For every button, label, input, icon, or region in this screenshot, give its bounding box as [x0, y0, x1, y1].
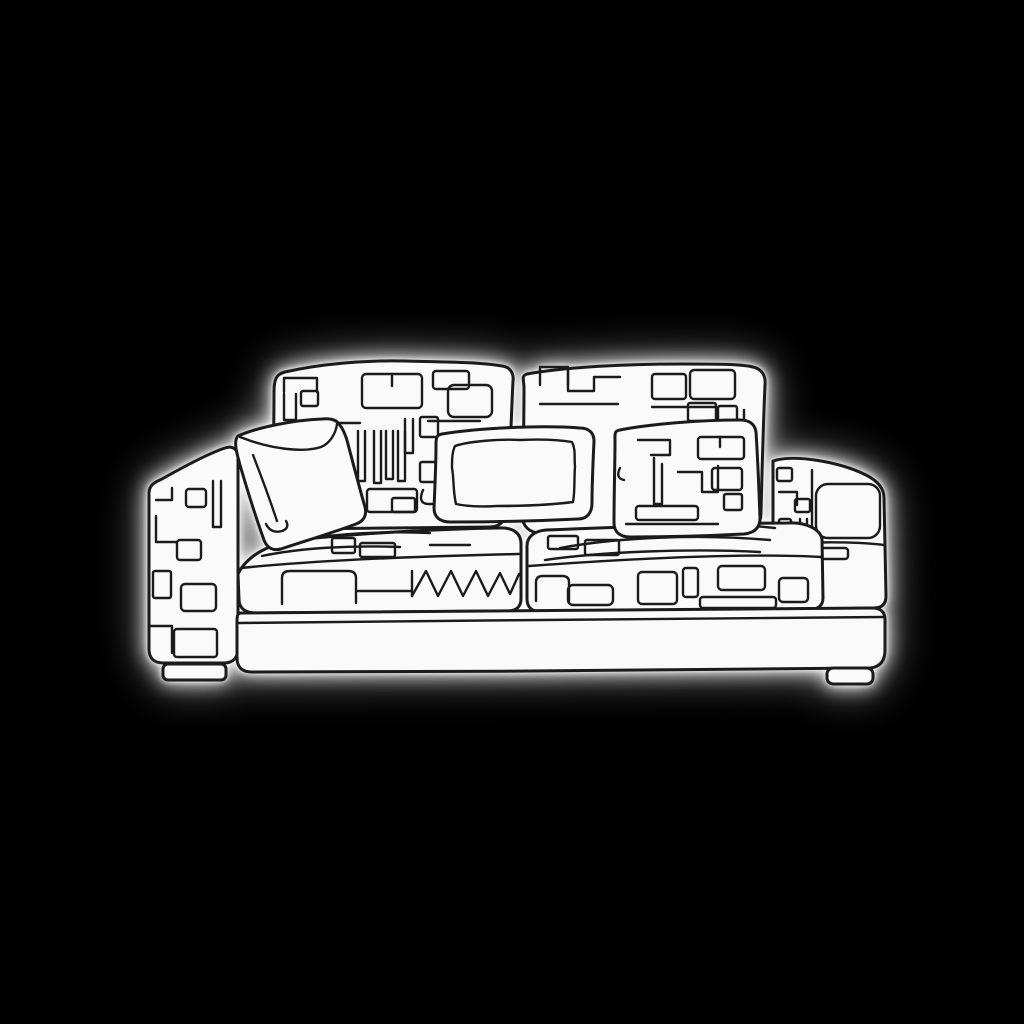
pillow-right [614, 420, 760, 537]
sofa [149, 361, 886, 684]
sofa-line-art [0, 0, 1024, 1024]
left-armrest [149, 447, 238, 663]
canvas [0, 0, 1024, 1024]
base [237, 608, 885, 672]
foot-right [827, 668, 873, 684]
foot-left [163, 664, 226, 680]
pillow-center [434, 427, 594, 522]
